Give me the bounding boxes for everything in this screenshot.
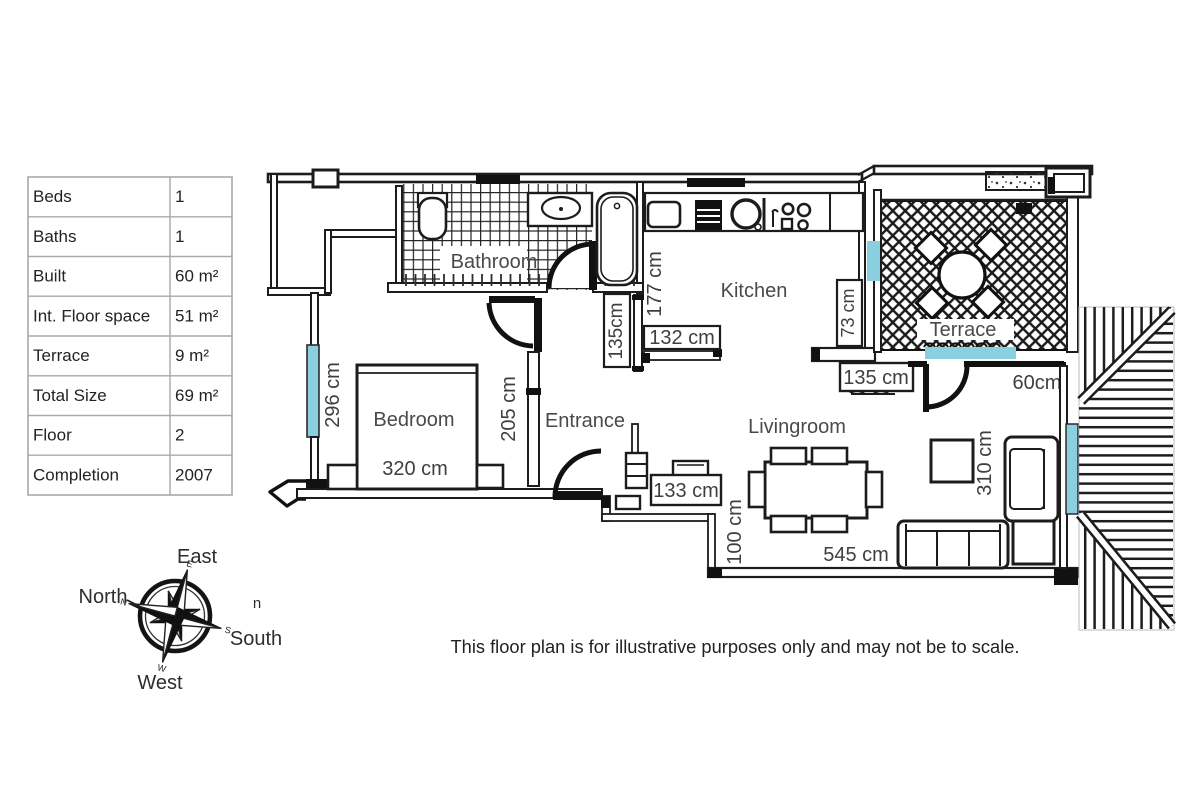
svg-text:Int. Floor space: Int. Floor space <box>33 306 150 325</box>
svg-text:Terrace: Terrace <box>33 346 90 365</box>
svg-text:545 cm: 545 cm <box>823 544 889 566</box>
svg-text:North: North <box>79 586 128 608</box>
svg-text:132 cm: 132 cm <box>649 327 715 349</box>
svg-text:n: n <box>253 595 261 612</box>
svg-text:100 cm: 100 cm <box>724 499 746 565</box>
svg-text:177 cm: 177 cm <box>644 251 666 317</box>
svg-text:Bathroom: Bathroom <box>451 251 538 273</box>
svg-text:Entrance: Entrance <box>545 410 625 432</box>
svg-text:Bedroom: Bedroom <box>373 409 454 431</box>
svg-text:Built: Built <box>33 267 66 286</box>
svg-text:73 cm: 73 cm <box>838 288 858 337</box>
svg-text:Total Size: Total Size <box>33 386 107 405</box>
svg-text:296 cm: 296 cm <box>322 362 344 428</box>
svg-text:320 cm: 320 cm <box>382 458 448 480</box>
svg-text:Livingroom: Livingroom <box>748 416 846 438</box>
svg-text:West: West <box>137 672 183 694</box>
svg-text:135 cm: 135 cm <box>843 367 909 389</box>
svg-text:133 cm: 133 cm <box>653 480 719 502</box>
svg-text:9 m²: 9 m² <box>175 346 209 365</box>
svg-text:135cm: 135cm <box>606 302 627 359</box>
svg-text:1: 1 <box>175 187 184 206</box>
svg-text:2007: 2007 <box>175 465 213 484</box>
svg-text:51 m²: 51 m² <box>175 306 219 325</box>
svg-text:Beds: Beds <box>33 187 72 206</box>
svg-text:310 cm: 310 cm <box>974 430 996 496</box>
svg-text:Floor: Floor <box>33 426 72 445</box>
svg-text:205 cm: 205 cm <box>498 376 520 442</box>
svg-text:60 m²: 60 m² <box>175 267 219 286</box>
svg-text:1: 1 <box>175 227 184 246</box>
svg-text:Terrace: Terrace <box>930 319 997 341</box>
svg-text:60cm: 60cm <box>1013 372 1062 394</box>
svg-text:2: 2 <box>175 426 184 445</box>
svg-text:69 m²: 69 m² <box>175 386 219 405</box>
svg-text:This floor plan is for illustr: This floor plan is for illustrative purp… <box>450 636 1019 657</box>
svg-text:Completion: Completion <box>33 465 119 484</box>
svg-text:South: South <box>230 628 282 650</box>
svg-text:Kitchen: Kitchen <box>721 280 788 302</box>
svg-text:Baths: Baths <box>33 227 76 246</box>
svg-text:East: East <box>177 546 217 568</box>
